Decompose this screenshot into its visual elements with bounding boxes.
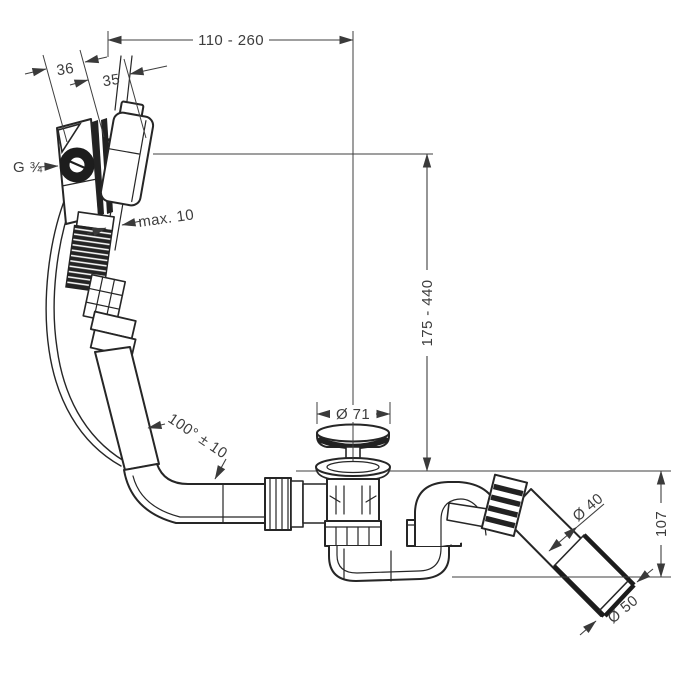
trap-nut-left — [325, 521, 381, 546]
label-height-range: 175 - 440 — [419, 280, 436, 347]
rotary-knob — [60, 148, 94, 182]
waste-body — [327, 479, 379, 521]
technical-drawing-canvas: 110 - 260 36 35 G ¾ max. 10 175 - 440 Ø … — [0, 0, 675, 675]
label-thread-size: G ¾ — [13, 159, 43, 176]
label-top-width: 110 - 260 — [198, 32, 264, 49]
label-pipe-40: Ø 40 — [570, 490, 607, 525]
drawing-svg: 110 - 260 36 35 G ¾ max. 10 175 - 440 Ø … — [0, 0, 675, 675]
label-plug-diameter: Ø 71 — [336, 406, 370, 423]
overflow-rosette — [99, 100, 156, 206]
trap-bowl — [329, 546, 449, 581]
label-wall-thickness: max. 10 — [137, 206, 195, 231]
label-body-depth: 36 — [55, 60, 75, 80]
label-107: 107 — [653, 511, 670, 537]
label-escutcheon-depth: 35 — [101, 71, 121, 91]
dim-top-width — [108, 31, 353, 461]
pipe-union-nut — [265, 478, 327, 530]
label-hose-angle: 100° ± 10 — [165, 410, 231, 462]
waste-flange — [316, 458, 390, 479]
overflow-pipe — [95, 347, 159, 470]
